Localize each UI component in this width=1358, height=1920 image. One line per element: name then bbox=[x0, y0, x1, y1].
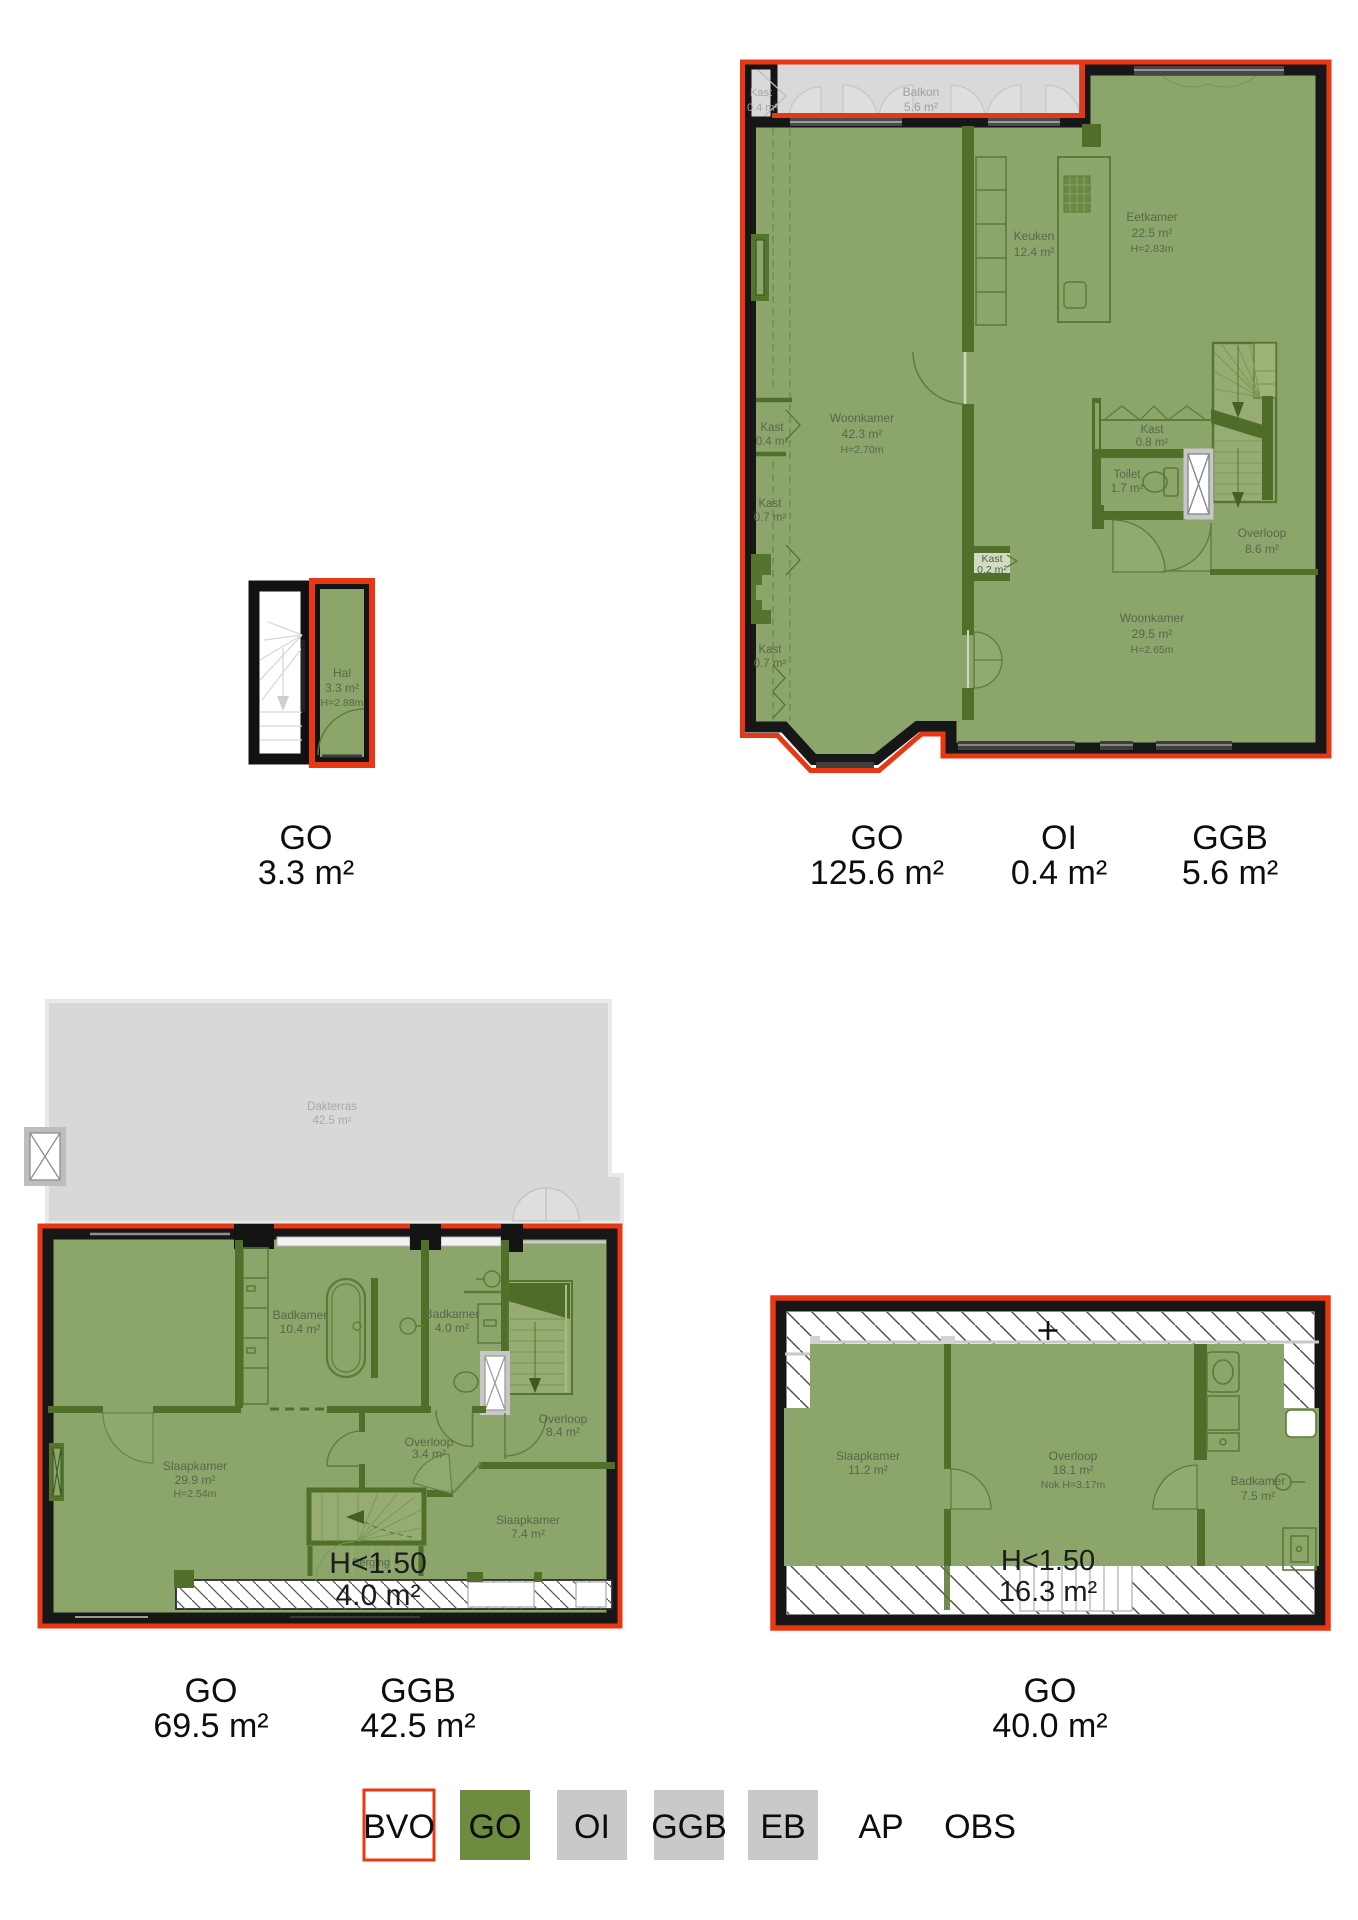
svg-text:8.4 m²: 8.4 m² bbox=[546, 1425, 580, 1439]
svg-text:5.6 m²: 5.6 m² bbox=[904, 100, 938, 114]
svg-text:Toilet: Toilet bbox=[1114, 469, 1142, 481]
svg-text:Kast: Kast bbox=[1140, 424, 1164, 436]
svg-text:11.2 m²: 11.2 m² bbox=[848, 1463, 888, 1477]
svg-text:Overloop: Overloop bbox=[539, 1412, 588, 1426]
svg-text:0.7 m²: 0.7 m² bbox=[754, 512, 787, 524]
svg-text:42.5 m²: 42.5 m² bbox=[360, 1707, 475, 1745]
svg-text:12.4 m²: 12.4 m² bbox=[1014, 245, 1055, 259]
svg-text:22.5 m²: 22.5 m² bbox=[1132, 226, 1173, 240]
svg-text:BVO: BVO bbox=[363, 1808, 435, 1846]
svg-text:Kast: Kast bbox=[758, 644, 782, 656]
svg-text:69.5 m²: 69.5 m² bbox=[153, 1707, 268, 1745]
svg-text:H=2.83m: H=2.83m bbox=[1131, 243, 1174, 255]
svg-text:0.4 m²: 0.4 m² bbox=[756, 436, 789, 448]
svg-text:3.4 m²: 3.4 m² bbox=[412, 1447, 446, 1461]
svg-text:Eetkamer: Eetkamer bbox=[1126, 210, 1177, 224]
svg-text:3.3 m²: 3.3 m² bbox=[325, 681, 359, 695]
svg-text:GO: GO bbox=[1024, 1672, 1077, 1710]
svg-text:0.8 m²: 0.8 m² bbox=[1136, 437, 1169, 449]
svg-text:GO: GO bbox=[280, 819, 333, 857]
svg-text:H<1.50: H<1.50 bbox=[329, 1547, 427, 1580]
svg-text:Dakterras: Dakterras bbox=[307, 1101, 357, 1113]
svg-text:Overloop: Overloop bbox=[1238, 526, 1287, 540]
svg-text:Slaapkamer: Slaapkamer bbox=[836, 1449, 900, 1463]
svg-text:Kast: Kast bbox=[750, 87, 772, 99]
svg-text:H=2.70m: H=2.70m bbox=[841, 444, 884, 456]
svg-text:4.0 m²: 4.0 m² bbox=[435, 1321, 469, 1335]
svg-text:Badkamer: Badkamer bbox=[425, 1307, 480, 1321]
svg-text:Badkamer: Badkamer bbox=[1231, 1474, 1286, 1488]
svg-text:18.1 m²: 18.1 m² bbox=[1053, 1463, 1094, 1477]
svg-text:GO: GO bbox=[469, 1808, 522, 1846]
svg-text:Keuken: Keuken bbox=[1014, 229, 1055, 243]
svg-text:EB: EB bbox=[760, 1808, 805, 1846]
svg-text:0.4 m²: 0.4 m² bbox=[747, 102, 779, 114]
svg-text:5.6 m²: 5.6 m² bbox=[1182, 854, 1278, 892]
svg-text:29.9 m²: 29.9 m² bbox=[175, 1473, 216, 1487]
svg-text:Woonkamer: Woonkamer bbox=[830, 411, 894, 425]
svg-text:OI: OI bbox=[1041, 819, 1077, 857]
svg-text:Overloop: Overloop bbox=[1049, 1449, 1098, 1463]
svg-text:42.5 m²: 42.5 m² bbox=[313, 1115, 352, 1127]
svg-text:AP: AP bbox=[858, 1808, 903, 1846]
svg-text:3.3 m²: 3.3 m² bbox=[258, 854, 354, 892]
svg-text:GGB: GGB bbox=[380, 1672, 456, 1710]
svg-text:7.5 m²: 7.5 m² bbox=[1241, 1489, 1275, 1503]
svg-text:Slaapkamer: Slaapkamer bbox=[496, 1513, 560, 1527]
svg-text:Slaapkamer: Slaapkamer bbox=[163, 1459, 227, 1473]
svg-text:GO: GO bbox=[851, 819, 904, 857]
svg-text:GGB: GGB bbox=[651, 1808, 727, 1846]
svg-text:0.4 m²: 0.4 m² bbox=[1011, 854, 1107, 892]
svg-text:4.0 m²: 4.0 m² bbox=[335, 1579, 420, 1612]
svg-text:40.0 m²: 40.0 m² bbox=[992, 1707, 1107, 1745]
svg-text:42.3 m²: 42.3 m² bbox=[842, 427, 883, 441]
svg-text:GO: GO bbox=[185, 1672, 238, 1710]
svg-text:8.6 m²: 8.6 m² bbox=[1245, 542, 1279, 556]
svg-text:H=2.65m: H=2.65m bbox=[1131, 644, 1174, 656]
svg-text:H<1.50: H<1.50 bbox=[1001, 1545, 1095, 1577]
svg-text:Nok H=3.17m: Nok H=3.17m bbox=[1041, 1479, 1106, 1491]
svg-text:OBS: OBS bbox=[944, 1808, 1016, 1846]
svg-text:Kast: Kast bbox=[758, 498, 782, 510]
svg-text:16.3 m²: 16.3 m² bbox=[999, 1576, 1098, 1608]
svg-text:OI: OI bbox=[574, 1808, 610, 1846]
svg-text:10.4 m²: 10.4 m² bbox=[280, 1322, 321, 1336]
svg-text:H=2.54m: H=2.54m bbox=[174, 1488, 217, 1500]
svg-text:1.7 m²: 1.7 m² bbox=[1111, 483, 1144, 495]
svg-text:H=2.88m: H=2.88m bbox=[321, 697, 364, 709]
svg-text:Kast: Kast bbox=[760, 422, 784, 434]
svg-text:Balkon: Balkon bbox=[903, 85, 940, 99]
svg-text:0.2 m²: 0.2 m² bbox=[977, 564, 1007, 576]
svg-text:Hal: Hal bbox=[333, 666, 351, 680]
svg-text:Woonkamer: Woonkamer bbox=[1120, 611, 1184, 625]
svg-text:GGB: GGB bbox=[1192, 819, 1268, 857]
svg-text:Badkamer: Badkamer bbox=[273, 1308, 328, 1322]
svg-text:29.5 m²: 29.5 m² bbox=[1132, 627, 1173, 641]
svg-text:125.6 m²: 125.6 m² bbox=[810, 854, 944, 892]
svg-text:0.7 m²: 0.7 m² bbox=[754, 658, 787, 670]
svg-text:7.4 m²: 7.4 m² bbox=[511, 1527, 545, 1541]
